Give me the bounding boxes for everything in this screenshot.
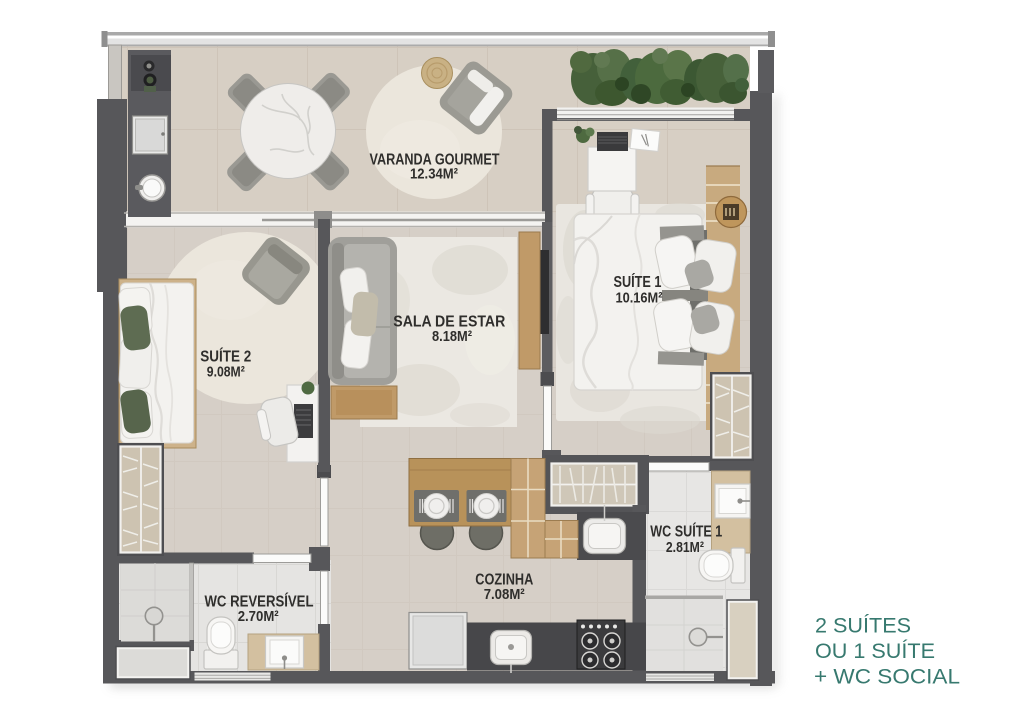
svg-text:+ WC SOCIAL: + WC SOCIAL: [814, 665, 960, 689]
svg-text:2.70M²: 2.70M²: [238, 608, 279, 625]
svg-text:2 SUÍTES: 2 SUÍTES: [815, 613, 911, 638]
svg-text:OU 1 SUÍTE: OU 1 SUÍTE: [815, 638, 935, 663]
svg-text:10.16M²: 10.16M²: [616, 290, 663, 307]
svg-text:SUÍTE 1: SUÍTE 1: [614, 274, 662, 291]
svg-text:7.08M²: 7.08M²: [484, 586, 525, 603]
svg-text:WC SUÍTE 1: WC SUÍTE 1: [650, 524, 722, 541]
svg-text:9.08M²: 9.08M²: [207, 364, 245, 381]
svg-text:8.18M²: 8.18M²: [432, 328, 472, 345]
svg-text:12.34M²: 12.34M²: [410, 166, 458, 183]
svg-text:2.81M²: 2.81M²: [666, 539, 704, 556]
